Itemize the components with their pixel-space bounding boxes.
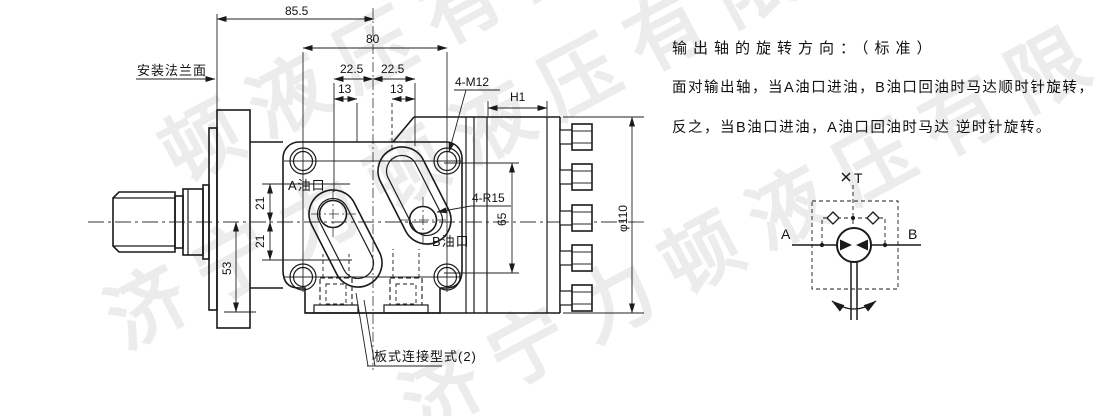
svg-text:21: 21 xyxy=(253,234,267,248)
note-line: 反之，当B油口进油，A油口回油时马达 逆时针旋转。 xyxy=(672,119,1052,136)
watermark-layer: 顿液压有限公司 济宁力顿液压有限 济宁力顿液压有限 xyxy=(92,0,1110,416)
svg-text:H1: H1 xyxy=(510,90,526,104)
svg-text:22.5: 22.5 xyxy=(340,62,364,76)
note-line: 面对输出轴，当A油口进油，B油口回油时马达顺时针旋转， xyxy=(672,79,1094,96)
label-port-b: B油口 xyxy=(432,234,470,249)
label-plate-connection: 板式连接型式(2) xyxy=(356,293,477,366)
engineering-drawing-page: 顿液压有限公司 济宁力顿液压有限 济宁力顿液压有限 xyxy=(0,0,1110,416)
hex-bolt xyxy=(560,164,592,190)
hex-bolt xyxy=(560,245,592,271)
svg-text:板式连接型式(2): 板式连接型式(2) xyxy=(374,349,477,364)
svg-text:65: 65 xyxy=(495,212,509,226)
svg-text:T: T xyxy=(854,170,864,186)
svg-text:13: 13 xyxy=(390,82,404,96)
note-line: 输出轴的旋转方向：（标准） xyxy=(672,40,938,57)
svg-text:21: 21 xyxy=(253,196,267,210)
motor-circle xyxy=(837,228,871,262)
rotation-arrow xyxy=(832,301,876,309)
svg-text:80: 80 xyxy=(366,32,380,46)
watermark-text: 济宁力顿液压有限 xyxy=(387,4,1110,416)
hidden-port-boss xyxy=(384,249,428,313)
svg-text:22.5: 22.5 xyxy=(381,62,405,76)
hydraulic-motor-drawing: 顿液压有限公司 济宁力顿液压有限 济宁力顿液压有限 xyxy=(0,0,1110,416)
svg-text:85.5: 85.5 xyxy=(285,4,309,18)
svg-text:4-R15: 4-R15 xyxy=(472,191,505,205)
svg-text:13: 13 xyxy=(338,82,352,96)
symbol-output-shaft xyxy=(832,262,876,320)
label-port-a: A油口 xyxy=(288,178,326,193)
svg-text:φ110: φ110 xyxy=(616,205,630,232)
hex-bolt xyxy=(560,205,592,231)
svg-text:安装法兰面: 安装法兰面 xyxy=(137,63,207,78)
svg-text:A: A xyxy=(781,226,791,242)
svg-text:53: 53 xyxy=(220,261,234,275)
svg-text:4-M12: 4-M12 xyxy=(455,75,489,89)
port-line-b: B xyxy=(871,226,921,245)
label-mount-flange: 安装法兰面 xyxy=(136,63,215,79)
svg-text:B: B xyxy=(908,226,918,242)
